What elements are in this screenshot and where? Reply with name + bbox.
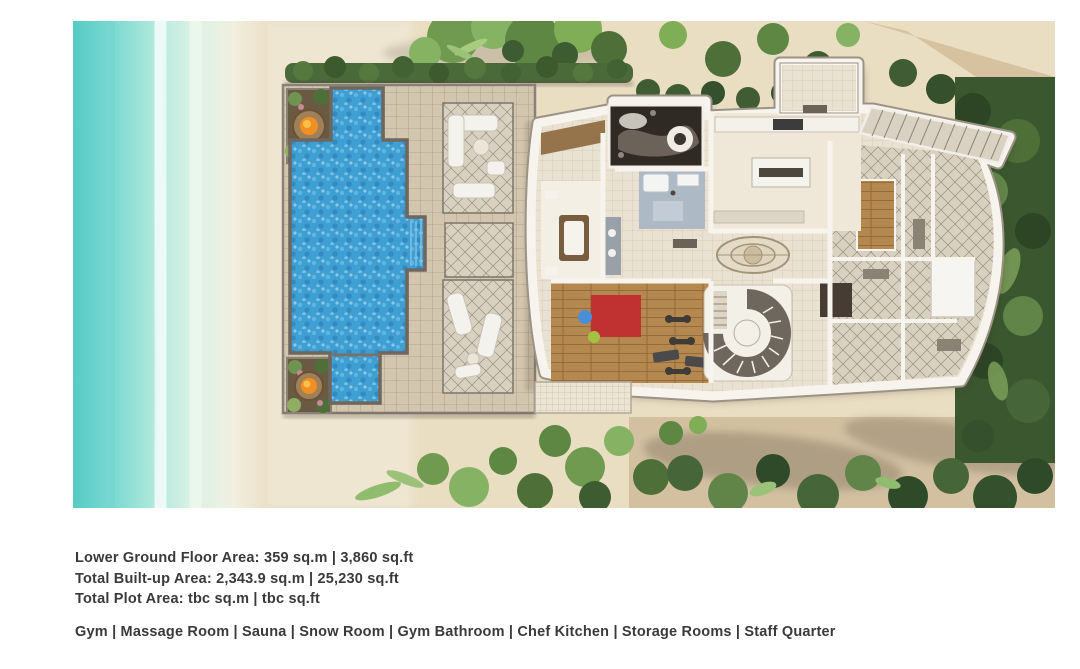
staff-quarter-room <box>931 259 975 317</box>
floor-plan-image <box>73 21 1055 508</box>
top-annex-room <box>780 63 858 113</box>
exercise-ball-green <box>588 331 600 343</box>
fire-pit-planter-bottom <box>287 358 331 413</box>
dark-closet <box>820 283 852 317</box>
amenities-list: Gym | Massage Room | Sauna | Snow Room |… <box>75 622 836 642</box>
lower-patio <box>535 382 631 413</box>
gym-mat <box>591 295 641 337</box>
hall-wardrobe <box>603 217 621 275</box>
surf-foam <box>157 21 164 508</box>
amenities-line: Gym | Massage Room | Sauna | Snow Room |… <box>75 622 836 642</box>
bathtub <box>643 174 669 192</box>
chef-kitchen <box>711 113 861 231</box>
area-line-lower-ground: Lower Ground Floor Area: 359 sq.m | 3,86… <box>75 548 413 569</box>
gym-bathroom <box>639 171 705 229</box>
gym <box>551 283 711 383</box>
snow-room-rock-feature <box>609 105 703 167</box>
lounge-rug-small <box>445 223 513 277</box>
spiral-staircase <box>704 285 792 381</box>
lounge-rug-sofa <box>443 103 513 213</box>
area-line-built-up: Total Built-up Area: 2,343.9 sq.m | 25,2… <box>75 569 413 590</box>
area-details: Lower Ground Floor Area: 359 sq.m | 3,86… <box>75 548 413 610</box>
area-line-plot: Total Plot Area: tbc sq.m | tbc sq.ft <box>75 589 413 610</box>
floor-medallion <box>717 237 789 273</box>
exercise-ball-blue <box>578 310 592 324</box>
lounge-rug-chaises <box>443 280 513 393</box>
storage-wood-floor <box>857 180 895 250</box>
ocean-water <box>73 21 268 508</box>
massage-room <box>541 120 605 279</box>
cooktop <box>773 119 803 130</box>
